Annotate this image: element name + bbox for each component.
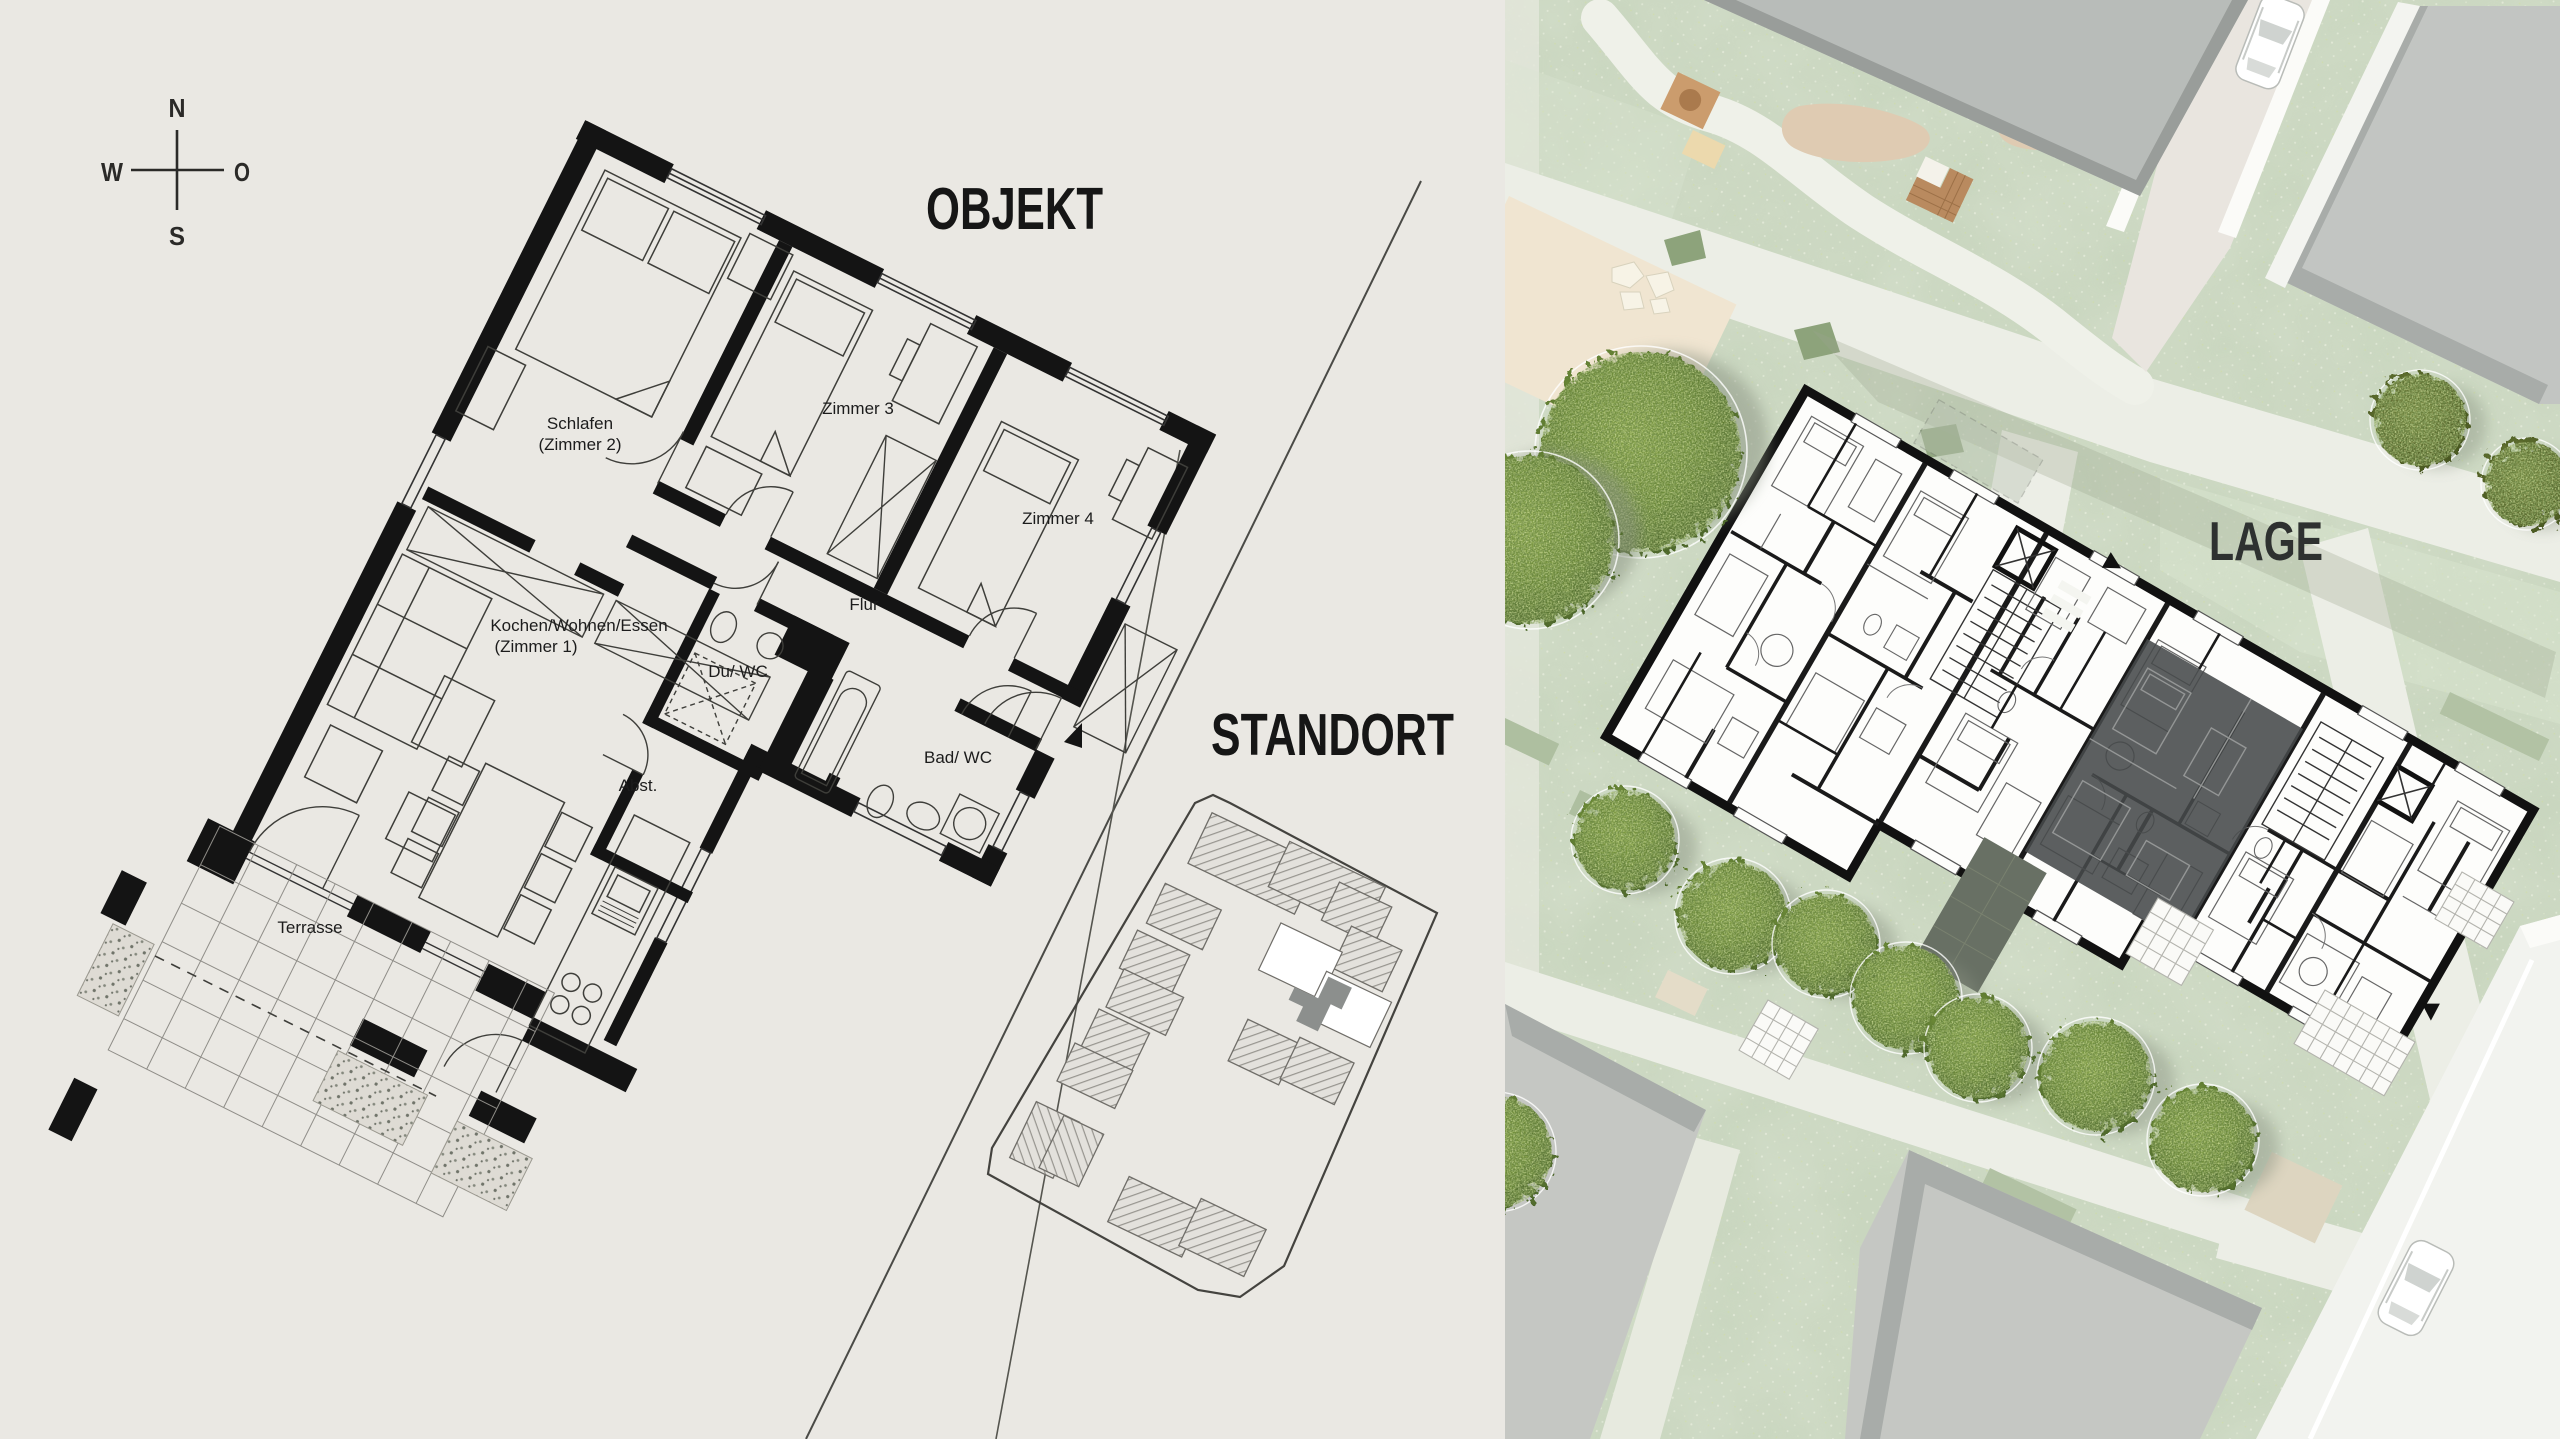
- svg-text:Du/ WC: Du/ WC: [708, 662, 768, 681]
- svg-text:W: W: [101, 157, 123, 187]
- svg-text:Abst.: Abst.: [619, 776, 658, 795]
- svg-text:LAGE: LAGE: [2209, 510, 2323, 572]
- svg-text:Schlafen: Schlafen: [547, 414, 613, 433]
- svg-text:Flur: Flur: [849, 595, 879, 614]
- svg-text:Terrasse: Terrasse: [277, 918, 342, 937]
- svg-text:Kochen/Wohnen/Essen: Kochen/Wohnen/Essen: [490, 616, 667, 635]
- svg-text:OBJEKT: OBJEKT: [926, 176, 1103, 242]
- svg-text:Bad/ WC: Bad/ WC: [924, 748, 992, 767]
- svg-text:(Zimmer 2): (Zimmer 2): [538, 435, 621, 454]
- svg-text:(Zimmer 1): (Zimmer 1): [494, 637, 577, 656]
- svg-text:Zimmer 4: Zimmer 4: [1022, 509, 1094, 528]
- svg-text:S: S: [169, 221, 185, 251]
- svg-text:STANDORT: STANDORT: [1211, 702, 1454, 768]
- svg-text:O: O: [234, 157, 250, 187]
- svg-text:N: N: [169, 93, 186, 123]
- svg-text:Zimmer 3: Zimmer 3: [822, 399, 894, 418]
